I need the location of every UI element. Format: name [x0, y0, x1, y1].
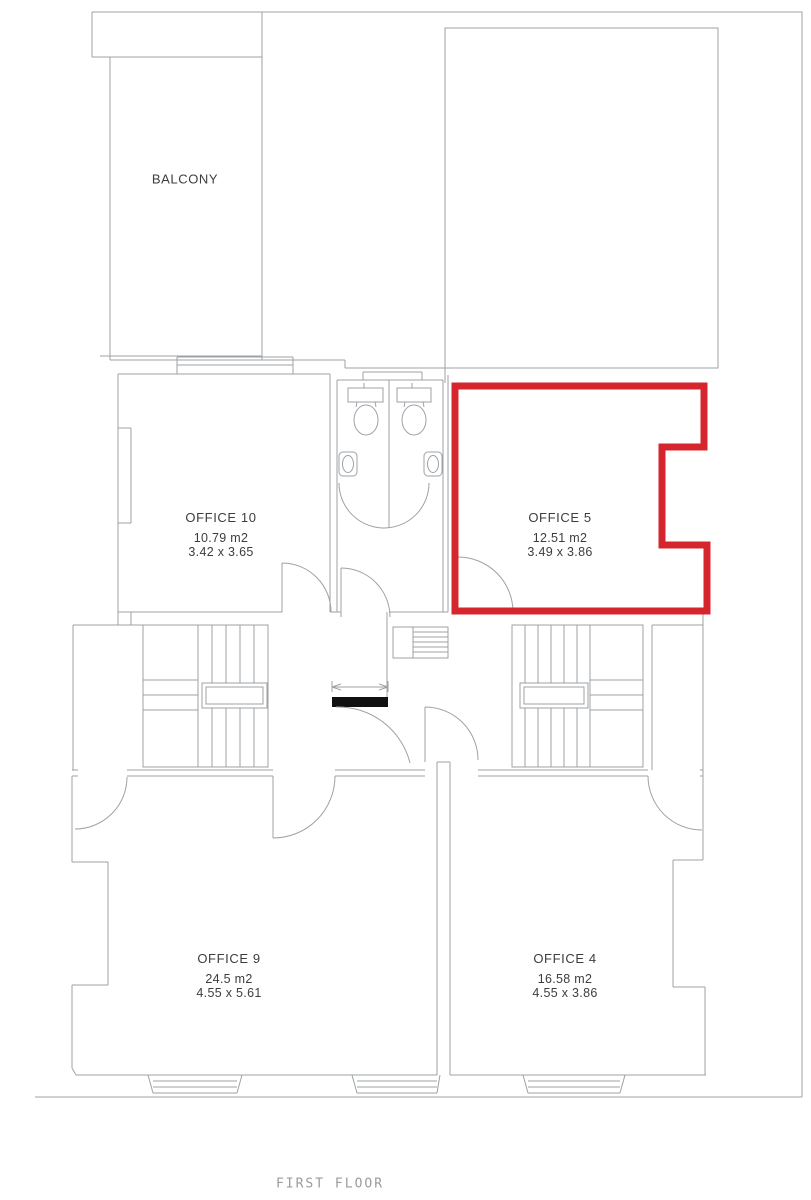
office9-dims: 4.55 x 5.61	[196, 986, 261, 1000]
office9-entry-door	[75, 777, 127, 829]
wc-sink-left-icon	[339, 452, 357, 476]
upper-block-outline	[445, 28, 718, 383]
office9-area: 24.5 m2	[196, 972, 261, 986]
balcony-label: BALCONY	[152, 172, 218, 187]
right-shaft	[652, 612, 703, 770]
balcony-outline	[92, 12, 445, 368]
office10-area: 10.79 m2	[185, 531, 256, 545]
office9-outer-wall	[72, 776, 437, 1075]
office4-name: OFFICE 4	[532, 952, 597, 966]
office5-dims: 3.49 x 3.86	[527, 545, 592, 559]
wc-walls	[330, 372, 448, 612]
outer-boundary	[35, 12, 802, 1097]
office5-door	[458, 557, 513, 612]
corridor-door-left	[336, 707, 410, 763]
lower-walls	[72, 762, 706, 1075]
bottom-windows	[148, 1075, 625, 1093]
floor-plan-drawing	[0, 0, 811, 1200]
wc-sink-right-icon	[424, 452, 442, 476]
office5-name: OFFICE 5	[527, 511, 592, 525]
office4-area: 16.58 m2	[532, 972, 597, 986]
stairs-left	[143, 625, 268, 767]
office9-side-door	[273, 776, 335, 838]
floor-plan: BALCONY OFFICE 10 10.79 m2 3.42 x 3.65 O…	[0, 0, 811, 1200]
office4-label: OFFICE 4 16.58 m2 4.55 x 3.86	[532, 952, 597, 1000]
office9-label: OFFICE 9 24.5 m2 4.55 x 5.61	[196, 952, 261, 1000]
wc-lobby-door	[341, 568, 390, 617]
corridor-door-right	[425, 707, 478, 762]
office9-name: OFFICE 9	[196, 952, 261, 966]
left-shaft	[73, 612, 143, 770]
office5-label: OFFICE 5 12.51 m2 3.49 x 3.86	[527, 511, 592, 559]
office10-dims: 3.42 x 3.65	[185, 545, 256, 559]
wc-stall-doors	[339, 483, 429, 528]
dimension-line	[332, 681, 388, 692]
office5-area: 12.51 m2	[527, 531, 592, 545]
wc-window	[363, 372, 422, 380]
office4-dims: 4.55 x 3.86	[532, 986, 597, 1000]
office4-entry-door	[648, 776, 702, 830]
door-arcs	[75, 483, 702, 838]
corridor-core	[73, 612, 703, 770]
floor-caption: FIRST FLOOR	[276, 1177, 384, 1192]
wc-toilet-left-icon	[348, 383, 383, 435]
office10-door	[282, 563, 331, 612]
office10-label: OFFICE 10 10.79 m2 3.42 x 3.65	[185, 511, 256, 559]
office10-name: OFFICE 10	[185, 511, 256, 525]
solid-wall-segment	[332, 697, 388, 707]
office-divider-wall	[437, 762, 450, 1075]
office10-walls	[118, 357, 330, 625]
office4-outer-wall	[450, 762, 706, 1075]
office5-highlight	[455, 386, 707, 611]
stairs-right	[512, 625, 643, 767]
wc-toilet-right-icon	[397, 383, 431, 435]
